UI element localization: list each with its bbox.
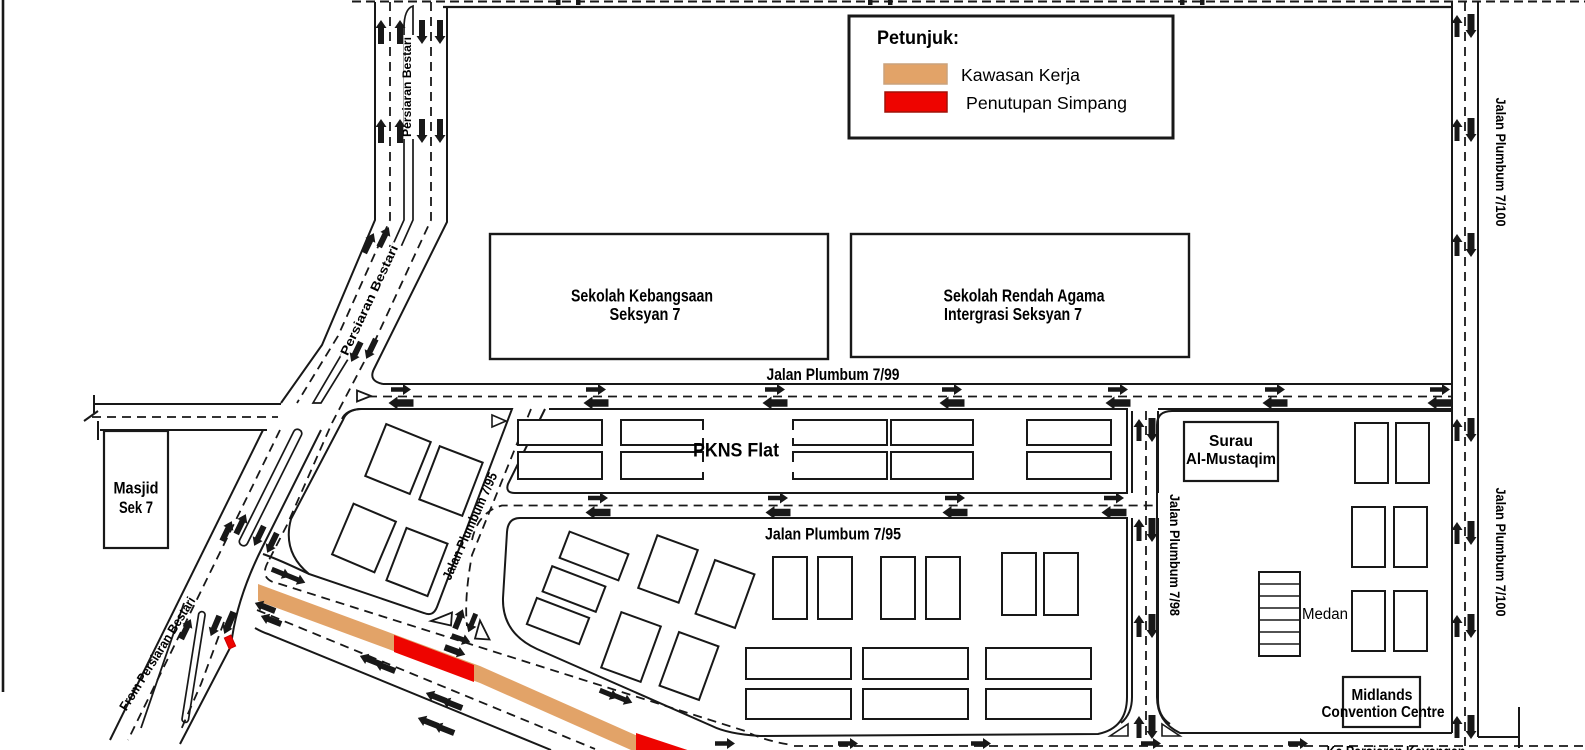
svg-text:PKNS Flat: PKNS Flat (693, 441, 780, 462)
svg-text:Jalan Plumbum 7/95: Jalan Plumbum 7/95 (765, 526, 901, 544)
svg-text:Persiaran Bestari: Persiaran Bestari (400, 37, 414, 137)
svg-text:Jalan Plumbum 7/98: Jalan Plumbum 7/98 (1167, 494, 1182, 616)
svg-text:Sekolah Kebangsaan: Sekolah Kebangsaan (571, 286, 713, 306)
svg-text:Sek 7: Sek 7 (119, 499, 153, 517)
svg-text:Jalan Plumbum 7/99: Jalan Plumbum 7/99 (767, 366, 900, 384)
svg-text:Convention Centre: Convention Centre (1322, 704, 1445, 721)
svg-text:Kawasan Kerja: Kawasan Kerja (961, 65, 1080, 85)
svg-text:Intergrasi Seksyan 7: Intergrasi Seksyan 7 (944, 304, 1082, 324)
svg-text:Jalan Plumbum 7/100: Jalan Plumbum 7/100 (1493, 98, 1508, 227)
svg-text:Seksyan 7: Seksyan 7 (610, 304, 681, 324)
svg-text:Penutupan Simpang: Penutupan Simpang (966, 93, 1127, 113)
svg-text:Surau: Surau (1209, 433, 1253, 450)
svg-text:Medan: Medan (1302, 606, 1348, 623)
svg-text:Midlands: Midlands (1352, 687, 1413, 704)
svg-text:Masjid: Masjid (114, 480, 159, 498)
svg-text:Jalan Plumbum 7/100: Jalan Plumbum 7/100 (1493, 488, 1508, 617)
svg-text:Ke Persiaran Kayangan: Ke Persiaran Kayangan (1327, 744, 1466, 750)
svg-text:Sekolah Rendah Agama: Sekolah Rendah Agama (944, 286, 1105, 306)
svg-text:Petunjuk:: Petunjuk: (877, 28, 959, 49)
svg-text:Al-Mustaqim: Al-Mustaqim (1186, 451, 1276, 468)
